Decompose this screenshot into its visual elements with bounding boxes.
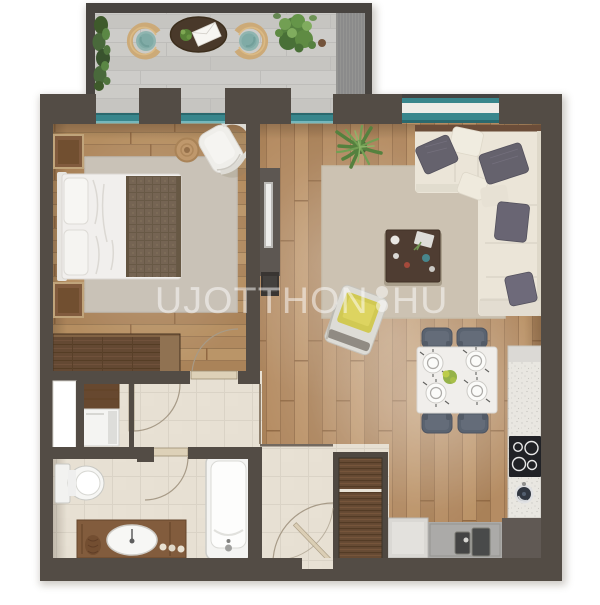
svg-text:UJOTTHON: UJOTTHON (155, 279, 369, 321)
svg-text:HU: HU (392, 279, 449, 321)
